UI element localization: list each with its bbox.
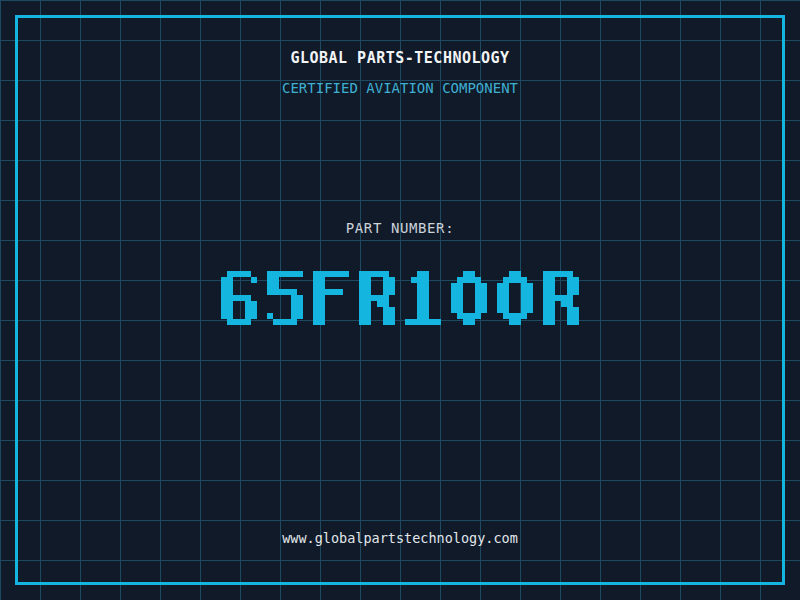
pixel-char [359, 271, 395, 325]
pixel-char [497, 271, 533, 325]
certificate-screen: GLOBAL PARTS-TECHNOLOGY CERTIFIED AVIATI… [0, 0, 800, 600]
certification-subtitle: CERTIFIED AVIATION COMPONENT [0, 80, 800, 96]
pixel-char [267, 271, 303, 325]
part-number-label: PART NUMBER: [0, 220, 800, 236]
website-url: www.globalpartstechnology.com [0, 530, 800, 546]
pixel-char [405, 271, 441, 325]
pixel-char [451, 271, 487, 325]
part-number-display [0, 271, 800, 325]
pixel-char [543, 271, 579, 325]
pixel-char [221, 271, 257, 325]
pixel-char [313, 271, 349, 325]
company-title: GLOBAL PARTS-TECHNOLOGY [0, 49, 800, 67]
